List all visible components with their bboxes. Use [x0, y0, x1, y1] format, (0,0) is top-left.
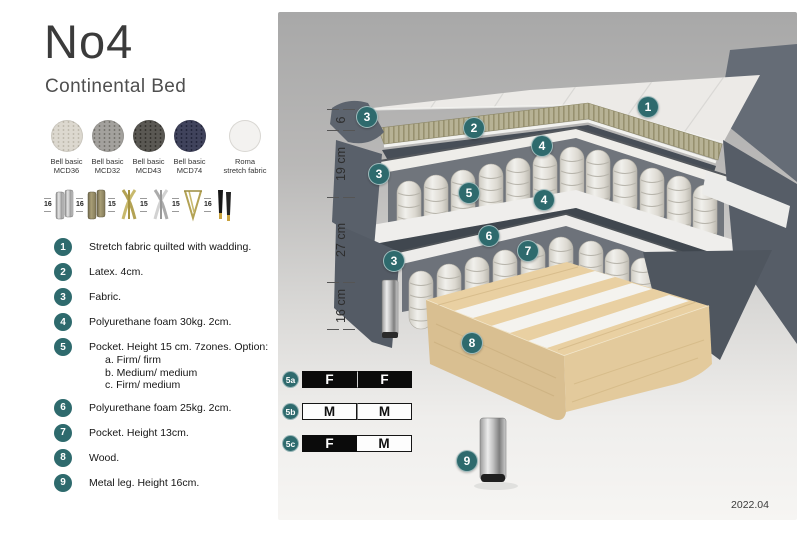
list-item: 6 Polyurethane foam 25kg. 2cm. [54, 399, 272, 417]
part-number-badge: 4 [54, 313, 72, 331]
leg-options: 16 16 15 [44, 188, 236, 222]
leg-option-cross-silver: 15 [140, 188, 172, 222]
fabric-name: Bell basic [173, 157, 205, 166]
part-number-badge: 6 [54, 399, 72, 417]
leg-height: 15 [108, 201, 116, 209]
fabric-swatch-mcd74: Bell basicMCD74 [169, 120, 210, 175]
leg-option-cylinder-silver: 16 [44, 188, 76, 222]
fabric-texture-icon [133, 120, 165, 152]
firmness-badge: 5a [282, 371, 299, 388]
firmness-badge: 5c [282, 435, 299, 452]
part-description: Pocket. Height 15 cm. 7zones. Option: [89, 341, 268, 353]
parts-list: 1 Stretch fabric quilted with wadding. 2… [54, 238, 272, 499]
part-description: Polyurethane foam 30kg. 2cm. [89, 313, 231, 328]
list-item: 4 Polyurethane foam 30kg. 2cm. [54, 313, 272, 331]
callout-5: 5 [458, 182, 480, 204]
cylinder-brass-leg-icon [86, 188, 108, 222]
pocket-option-b: b. Medium/ medium [105, 367, 268, 380]
list-item: 9 Metal leg. Height 16cm. [54, 474, 272, 492]
fabric-code: MCD36 [50, 166, 82, 175]
leg-option-hairpin-gold: 15 [172, 188, 204, 222]
fabric-name: Bell basic [91, 157, 123, 166]
fabric-name: Roma [224, 157, 267, 166]
leg-option-cylinder-brass: 16 [76, 188, 108, 222]
firmness-bar: M M [302, 403, 412, 420]
part-description: Wood. [89, 449, 119, 464]
fabric-code: MCD74 [173, 166, 205, 175]
product-subtitle: Continental Bed [45, 76, 186, 98]
firmness-cell: F [302, 371, 357, 388]
part-description: Metal leg. Height 16cm. [89, 474, 199, 489]
callout-4-lower: 4 [533, 189, 555, 211]
part-description: Pocket. Height 13cm. [89, 424, 189, 439]
product-title: No4 [44, 14, 133, 69]
leg-option-cross-gold: 15 [108, 188, 140, 222]
pocket-option-c: c. Firm/ medium [105, 379, 268, 392]
callout-3-base: 3 [383, 250, 405, 272]
callout-3-topper: 3 [356, 106, 378, 128]
cross-silver-leg-icon [150, 188, 172, 222]
dimension-tick [327, 130, 357, 132]
firmness-badge: 5b [282, 403, 299, 420]
fabric-name: Bell basic [50, 157, 82, 166]
part-description: Fabric. [89, 288, 121, 303]
part-description: Latex. 4cm. [89, 263, 143, 278]
fabric-swatch-mcd43: Bell basicMCD43 [128, 120, 169, 175]
leg-option-tapered-black-gold: 16 [204, 188, 236, 222]
hairpin-gold-leg-icon [182, 188, 204, 222]
firmness-bar: F M [302, 435, 412, 452]
fabric-texture-icon [92, 120, 124, 152]
part-number-badge: 5 [54, 338, 72, 356]
callout-9: 9 [456, 450, 478, 472]
firmness-cell: F [357, 371, 412, 388]
part-description: Stretch fabric quilted with wadding. [89, 238, 251, 253]
fabric-name: Bell basic [132, 157, 164, 166]
firmness-bar: F F [302, 371, 412, 388]
list-item: 1 Stretch fabric quilted with wadding. [54, 238, 272, 256]
callout-3-mattress: 3 [368, 163, 390, 185]
cross-gold-leg-icon [118, 188, 140, 222]
fabric-texture-icon [51, 120, 83, 152]
list-item: 5 Pocket. Height 15 cm. 7zones. Option: … [54, 338, 272, 392]
fabric-texture-icon [229, 120, 261, 152]
callout-2: 2 [463, 117, 485, 139]
leg-height: 16 [76, 201, 84, 209]
fabric-swatch-roma: Romastretch fabric [216, 120, 274, 175]
firmness-cell: F [302, 435, 357, 452]
list-item: 7 Pocket. Height 13cm. [54, 424, 272, 442]
leg-height: 16 [204, 201, 212, 209]
firmness-cell: M [357, 403, 412, 420]
callout-4-upper: 4 [531, 135, 553, 157]
list-item: 8 Wood. [54, 449, 272, 467]
cylinder-silver-leg-icon [54, 188, 76, 222]
leg-height: 16 [44, 201, 52, 209]
fabric-swatch-mcd32: Bell basicMCD32 [87, 120, 128, 175]
callout-1: 1 [637, 96, 659, 118]
dimension-label-topper: 6 [334, 117, 348, 124]
fabric-swatch-mcd36: Bell basicMCD36 [46, 120, 87, 175]
fabric-code: MCD32 [91, 166, 123, 175]
fabric-texture-icon [174, 120, 206, 152]
list-item: 2 Latex. 4cm. [54, 263, 272, 281]
pocket-option-a: a. Firm/ firm [105, 354, 268, 367]
firmness-row-5b: 5b M M [282, 403, 412, 420]
callout-7: 7 [517, 240, 539, 262]
leg-height: 15 [172, 201, 180, 209]
part-number-badge: 8 [54, 449, 72, 467]
version-label: 2022.04 [731, 499, 769, 511]
part-number-badge: 9 [54, 474, 72, 492]
firmness-row-5c: 5c F M [282, 435, 412, 452]
callout-6: 6 [478, 225, 500, 247]
firmness-cell: M [302, 403, 357, 420]
leg-height: 15 [140, 201, 148, 209]
tapered-black-leg-icon [214, 188, 236, 222]
dimension-label-mattress: 19 cm [334, 147, 348, 181]
dimension-tick [327, 282, 357, 284]
part-number-badge: 1 [54, 238, 72, 256]
fabric-swatches: Bell basicMCD36 Bell basicMCD32 Bell bas… [46, 120, 274, 175]
dimension-label-base: 27 cm [334, 223, 348, 257]
firmness-row-5a: 5a F F [282, 371, 412, 388]
dimension-tick [327, 329, 357, 331]
bed-cutaway-diagram: 6 19 cm 27 cm 16 cm 1 2 3 4 3 5 4 6 7 3 … [278, 12, 797, 520]
dimension-tick [327, 109, 357, 111]
part-number-badge: 2 [54, 263, 72, 281]
fabric-code: MCD43 [132, 166, 164, 175]
list-item: 3 Fabric. [54, 288, 272, 306]
dimension-tick [327, 197, 357, 199]
part-number-badge: 7 [54, 424, 72, 442]
part-number-badge: 3 [54, 288, 72, 306]
dimension-label-legs: 16 cm [334, 289, 348, 323]
fabric-code: stretch fabric [224, 166, 267, 175]
page: No4 Continental Bed Bell basicMCD36 Bell… [0, 0, 800, 533]
firmness-cell: M [357, 435, 412, 452]
callout-8: 8 [461, 332, 483, 354]
part-description: Polyurethane foam 25kg. 2cm. [89, 399, 231, 414]
